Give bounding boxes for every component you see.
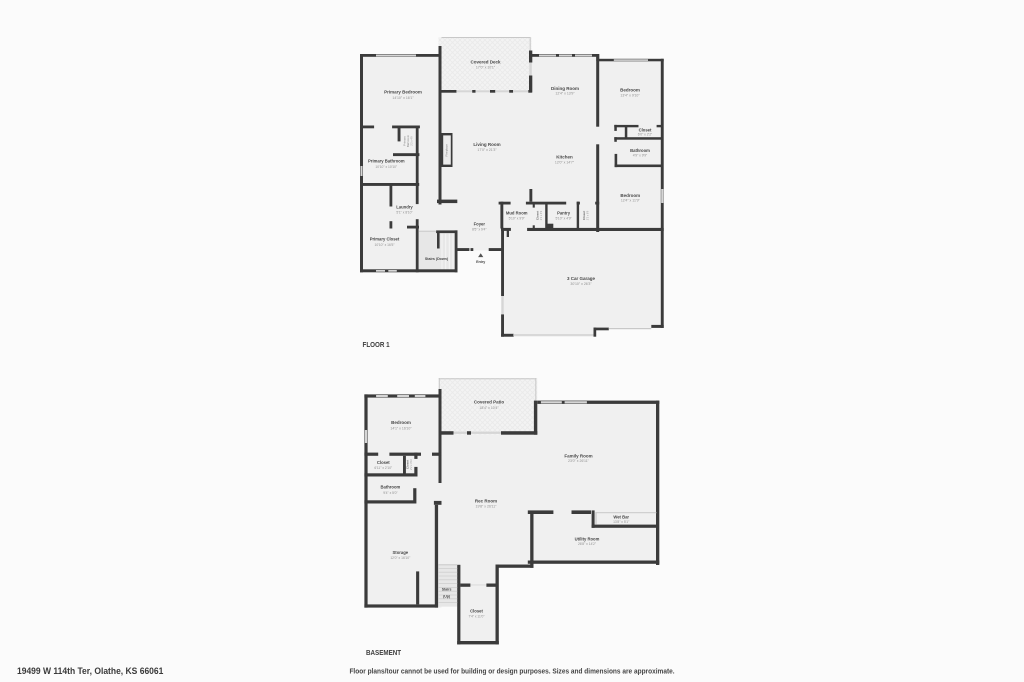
svg-text:12'0" x 14'7": 12'0" x 14'7" bbox=[555, 160, 575, 164]
svg-text:Family Room: Family Room bbox=[564, 454, 592, 459]
svg-text:6'0" x 2'2": 6'0" x 2'2" bbox=[638, 133, 653, 137]
svg-text:Closet: Closet bbox=[582, 211, 586, 220]
svg-text:5'10" x 9'9": 5'10" x 9'9" bbox=[509, 217, 526, 221]
svg-text:Laundry: Laundry bbox=[396, 204, 413, 209]
svg-text:14'10" x 16'1": 14'10" x 16'1" bbox=[392, 96, 414, 100]
svg-text:18'4" x 10'4": 18'4" x 10'4" bbox=[479, 406, 499, 410]
svg-text:12'4" x 11'9": 12'4" x 11'9" bbox=[621, 199, 641, 203]
svg-text:19499 W 114th Ter, Olathe, KS: 19499 W 114th Ter, Olathe, KS 66061 bbox=[17, 666, 163, 676]
svg-text:Stairs (Down): Stairs (Down) bbox=[425, 257, 449, 261]
svg-text:13'8" x 5'1": 13'8" x 5'1" bbox=[613, 520, 630, 524]
svg-text:Bedroom: Bedroom bbox=[620, 88, 640, 93]
svg-text:Bathroom: Bathroom bbox=[630, 148, 650, 153]
svg-text:2'2 x 3'10: 2'2 x 3'10 bbox=[409, 458, 413, 469]
svg-text:26'8" x 14'2": 26'8" x 14'2" bbox=[578, 542, 597, 546]
svg-text:Dining Room: Dining Room bbox=[551, 86, 579, 91]
svg-text:Utility Room: Utility Room bbox=[575, 537, 600, 542]
svg-text:Closet: Closet bbox=[536, 211, 540, 220]
svg-text:10'10" x 16'5": 10'10" x 16'5" bbox=[375, 243, 396, 247]
svg-text:9'4" x 5'0": 9'4" x 5'0" bbox=[383, 491, 398, 495]
svg-text:5'10" x 4'9": 5'10" x 4'9" bbox=[555, 217, 572, 221]
svg-text:Rec Room: Rec Room bbox=[475, 499, 497, 504]
svg-text:(Up): (Up) bbox=[443, 595, 450, 599]
svg-text:Primary Closet: Primary Closet bbox=[370, 237, 400, 242]
svg-text:Closet: Closet bbox=[377, 460, 390, 465]
svg-text:19'8" x 26'11": 19'8" x 26'11" bbox=[476, 504, 498, 508]
svg-text:14'1" x 16'10": 14'1" x 16'10" bbox=[390, 427, 412, 431]
svg-text:17'0" x 10'1": 17'0" x 10'1" bbox=[476, 66, 496, 70]
svg-text:Closet: Closet bbox=[639, 127, 652, 132]
svg-text:Floor plans/tour cannot be use: Floor plans/tour cannot be used for buil… bbox=[349, 668, 674, 675]
svg-text:2'2 x 4'9: 2'2 x 4'9 bbox=[539, 210, 543, 220]
svg-text:Entry: Entry bbox=[476, 260, 485, 264]
svg-text:2'2 x 6'9: 2'2 x 6'9 bbox=[586, 210, 590, 220]
svg-text:6'11" x 2'10": 6'11" x 2'10" bbox=[374, 466, 393, 470]
svg-text:Storage: Storage bbox=[393, 550, 409, 555]
svg-text:Bathroom: Bathroom bbox=[381, 485, 401, 490]
svg-text:Fireplace: Fireplace bbox=[445, 144, 449, 157]
svg-text:3 Car Garage: 3 Car Garage bbox=[567, 276, 596, 281]
svg-text:8'5" x 9'4": 8'5" x 9'4" bbox=[472, 228, 487, 232]
svg-text:Primary Bathroom: Primary Bathroom bbox=[368, 159, 405, 164]
svg-text:Stairs: Stairs bbox=[442, 588, 452, 592]
svg-text:Mud Room: Mud Room bbox=[506, 211, 528, 216]
svg-text:FLOOR 1: FLOOR 1 bbox=[363, 342, 390, 349]
svg-text:Closet: Closet bbox=[470, 609, 483, 614]
svg-text:7'4" x 11'0": 7'4" x 11'0" bbox=[468, 615, 485, 619]
svg-text:Bedroom: Bedroom bbox=[620, 193, 640, 198]
svg-text:Closet: Closet bbox=[405, 460, 409, 469]
svg-text:12'0" x 16'10": 12'0" x 16'10" bbox=[390, 556, 411, 560]
svg-text:13'4" x 9'10": 13'4" x 9'10" bbox=[620, 93, 640, 97]
svg-text:Bedroom: Bedroom bbox=[391, 420, 411, 425]
svg-text:Bathroom: Bathroom bbox=[406, 134, 410, 147]
svg-text:23'0" x 26'11": 23'0" x 26'11" bbox=[568, 459, 590, 463]
svg-text:10'10" x 10'10": 10'10" x 10'10" bbox=[375, 165, 398, 169]
svg-text:12'4" x 13'9": 12'4" x 13'9" bbox=[555, 92, 575, 96]
svg-text:Covered Patio: Covered Patio bbox=[474, 400, 505, 405]
svg-text:BASEMENT: BASEMENT bbox=[366, 650, 401, 657]
svg-text:Covered Deck: Covered Deck bbox=[470, 59, 501, 64]
svg-text:Kitchen: Kitchen bbox=[556, 155, 573, 160]
svg-text:5'1" x 8'10": 5'1" x 8'10" bbox=[396, 211, 413, 215]
svg-text:17'0" x 21'3": 17'0" x 21'3" bbox=[477, 148, 497, 152]
svg-text:4'9" x 9'9": 4'9" x 9'9" bbox=[633, 153, 648, 157]
svg-text:Foyer: Foyer bbox=[474, 221, 486, 226]
svg-text:2'2 x 4'9: 2'2 x 4'9 bbox=[410, 136, 414, 146]
svg-text:Living Room: Living Room bbox=[473, 142, 500, 147]
svg-text:Primary Bedroom: Primary Bedroom bbox=[384, 89, 422, 94]
svg-text:Pantry: Pantry bbox=[557, 211, 571, 216]
svg-text:Wet Bar: Wet Bar bbox=[613, 514, 629, 519]
svg-text:30'10" x 26'3": 30'10" x 26'3" bbox=[570, 282, 592, 286]
